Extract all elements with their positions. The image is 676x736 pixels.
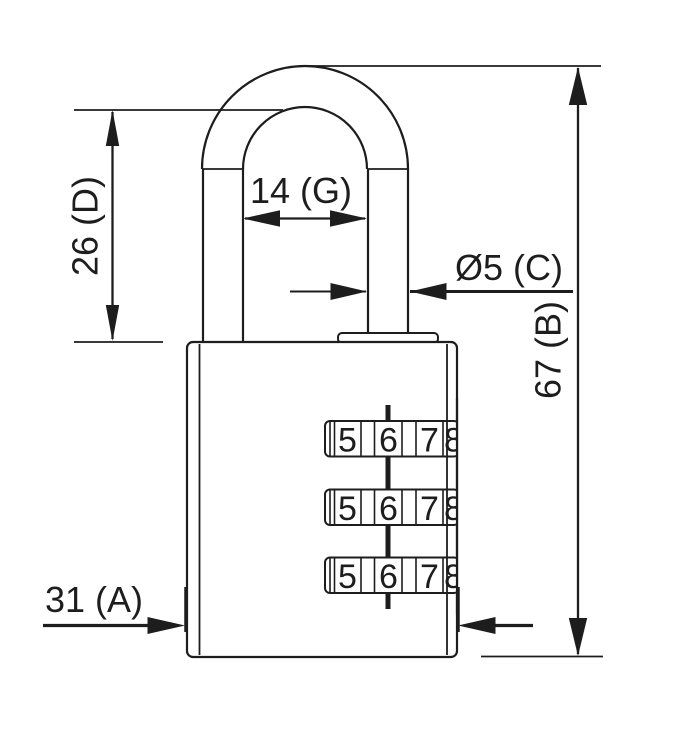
dimension-shackle-clearance-height: 26 (D) [65,110,284,342]
dimension-label: 31 (A) [45,579,143,620]
arrowhead-left-icon [458,617,496,634]
dimension-shackle-diameter: Ø5 (C) [290,247,573,300]
dial-digit[interactable]: 6 [379,422,398,460]
arrowhead-left-icon [410,283,447,300]
dial-digit[interactable]: 5 [338,490,357,528]
dial-digit[interactable]: 7 [420,490,439,528]
arrowhead-right-icon [330,210,367,227]
dimension-label: 67 (B) [528,301,569,399]
arrowhead-down-icon [569,618,587,656]
dial-row-3[interactable]: 5 6 7 8 [325,558,463,597]
combination-dials: 5 6 7 8 5 6 7 8 [325,405,463,609]
dial-digit[interactable]: 5 [338,422,357,460]
dial-digit[interactable]: 6 [379,558,398,596]
arrowhead-down-icon [106,305,119,341]
dimension-label: 14 (G) [250,170,352,211]
shackle-outer-arc [202,66,408,169]
arrowhead-left-icon [243,210,280,227]
arrowhead-right-icon [331,283,368,300]
dial-digit[interactable]: 6 [379,490,398,528]
dimension-label: 26 (D) [65,176,106,276]
arrowhead-up-icon [106,110,119,146]
dial-digit[interactable]: 5 [338,558,357,596]
arrowhead-right-icon [148,617,186,634]
dial-row-2[interactable]: 5 6 7 8 [325,490,463,529]
arrowhead-up-icon [569,67,587,105]
dial-digit[interactable]: 7 [420,422,439,460]
shackle-inner-arc [243,107,367,169]
dial-digit[interactable]: 7 [420,558,439,596]
padlock-technical-drawing: 5 6 7 8 5 6 7 8 [0,0,676,736]
dimension-shackle-inner-width: 14 (G) [243,170,367,227]
drawing-canvas: 5 6 7 8 5 6 7 8 [0,0,676,736]
dimension-label: Ø5 (C) [455,247,563,288]
dial-row-1[interactable]: 5 6 7 8 [325,421,463,460]
